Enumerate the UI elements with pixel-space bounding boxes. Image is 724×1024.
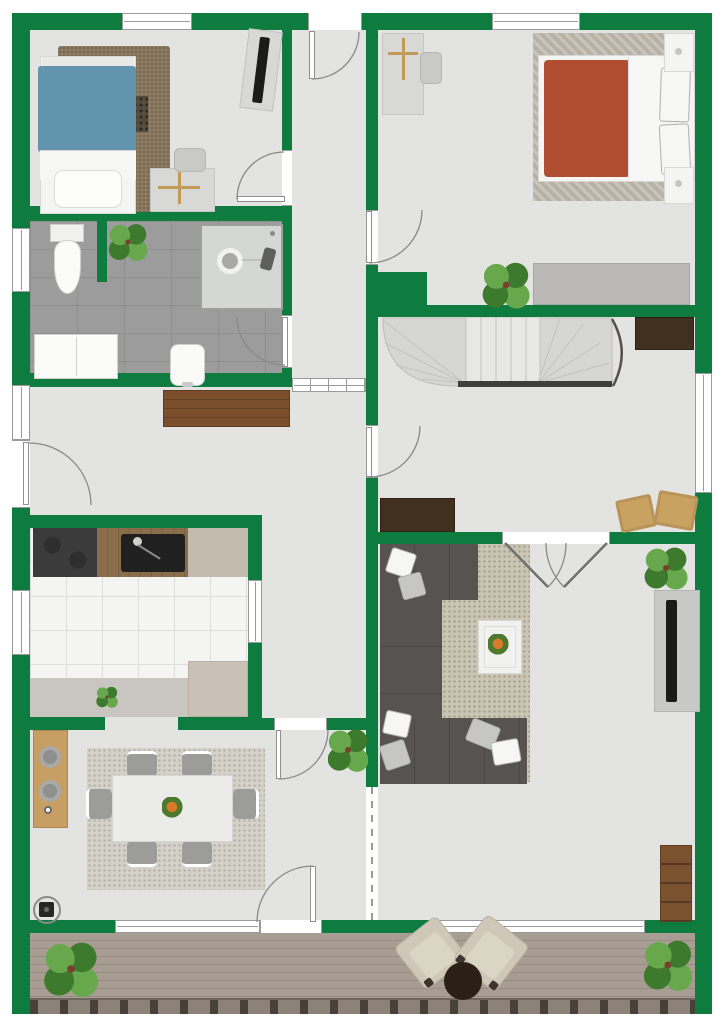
bedroom-1-door-arc [237, 152, 284, 199]
living-double-door-arc-right [546, 543, 564, 587]
hallway-exterior-door-arc [29, 443, 91, 505]
dining-terrace-door-arc [257, 866, 313, 922]
dining-room-door-arc [279, 730, 328, 779]
bedroom-2-door-arc [369, 210, 422, 263]
living-double-door-leaf-left [505, 543, 548, 587]
living-double-door-arc-left [548, 543, 566, 587]
entrance-door-arc [312, 32, 359, 79]
living-double-door-leaf-right [564, 543, 607, 587]
stair-hall-door-arc [369, 426, 420, 477]
floor-plan [0, 0, 724, 1024]
bathroom-door-arc [237, 317, 285, 365]
door-swing-arcs [0, 0, 724, 1024]
